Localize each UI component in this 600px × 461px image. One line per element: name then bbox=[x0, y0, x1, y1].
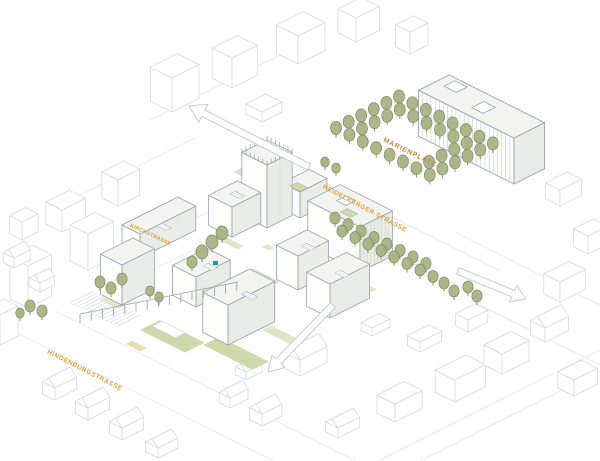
site-plan-canvas: MARIENPLATZ HEIDELBERGER STRASSE KIRCHST… bbox=[0, 0, 600, 461]
site-buildings bbox=[100, 75, 544, 345]
site-marker bbox=[213, 261, 218, 265]
page-root: MARIENPLATZ HEIDELBERGER STRASSE KIRCHST… bbox=[0, 0, 600, 461]
context-buildings bbox=[0, 0, 600, 458]
